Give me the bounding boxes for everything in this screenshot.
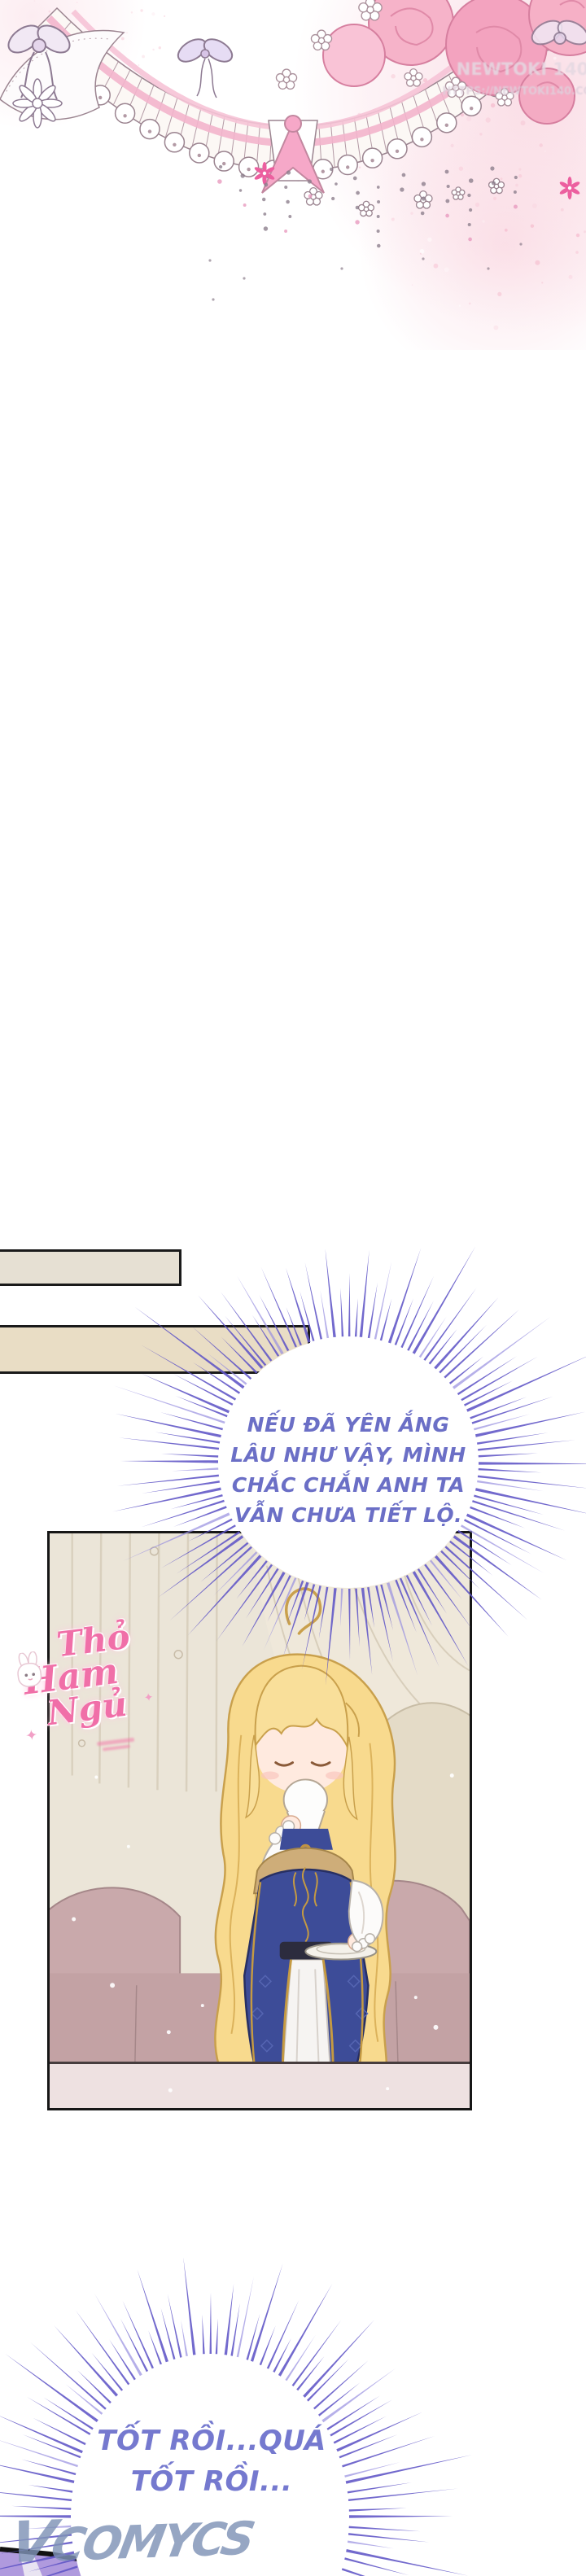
thought-bubbles-layer	[0, 0, 586, 2576]
narration-box-1	[0, 1249, 181, 1286]
watermark-line-2: HTTPS://NEWTOKI140.COM	[442, 85, 586, 98]
translator-stamp: Thỏ Ham Ngủ ✦ ✦	[13, 1616, 180, 1775]
narration-box-2	[0, 1325, 310, 1374]
stamp-url-blur	[103, 1744, 130, 1751]
bottom-panel-corner	[0, 2530, 195, 2576]
bubble2-line: TỐT RỒI...	[65, 2461, 358, 2502]
header-ornament: NEWTOKI 140 HTTPS://NEWTOKI140.COM	[0, 0, 586, 350]
bubble1-line: NẾU ĐÃ YÊN ẮNG	[210, 1410, 487, 1440]
daisy-icon	[13, 79, 62, 128]
watermark-line-1: NEWTOKI 140	[457, 59, 586, 79]
sparkle-icon: ✦	[24, 1726, 39, 1745]
bubble1-line: VẪN CHƯA TIẾT LỘ.	[210, 1500, 487, 1530]
comic-page: NEWTOKI 140 HTTPS://NEWTOKI140.COM	[0, 0, 586, 2576]
bubble2-line: TỐT RỒI...QUÁ	[65, 2421, 358, 2461]
bunny-icon	[12, 1651, 46, 1690]
bubble1-line: LÂU NHƯ VẬY, MÌNH	[210, 1440, 487, 1470]
butterfly-icon	[174, 35, 236, 98]
bubble1-line: CHẮC CHẮN ANH TA	[210, 1470, 487, 1500]
thought-bubble-1-text: NẾU ĐÃ YÊN ẮNG LÂU NHƯ VẬY, MÌNH CHẮC CH…	[210, 1410, 487, 1530]
site-watermark: NEWTOKI 140 HTTPS://NEWTOKI140.COM	[442, 59, 586, 98]
thought-bubble-2-text: TỐT RỒI...QUÁ TỐT RỒI...	[65, 2421, 358, 2502]
sparkle-icon: ✦	[143, 1691, 155, 1705]
